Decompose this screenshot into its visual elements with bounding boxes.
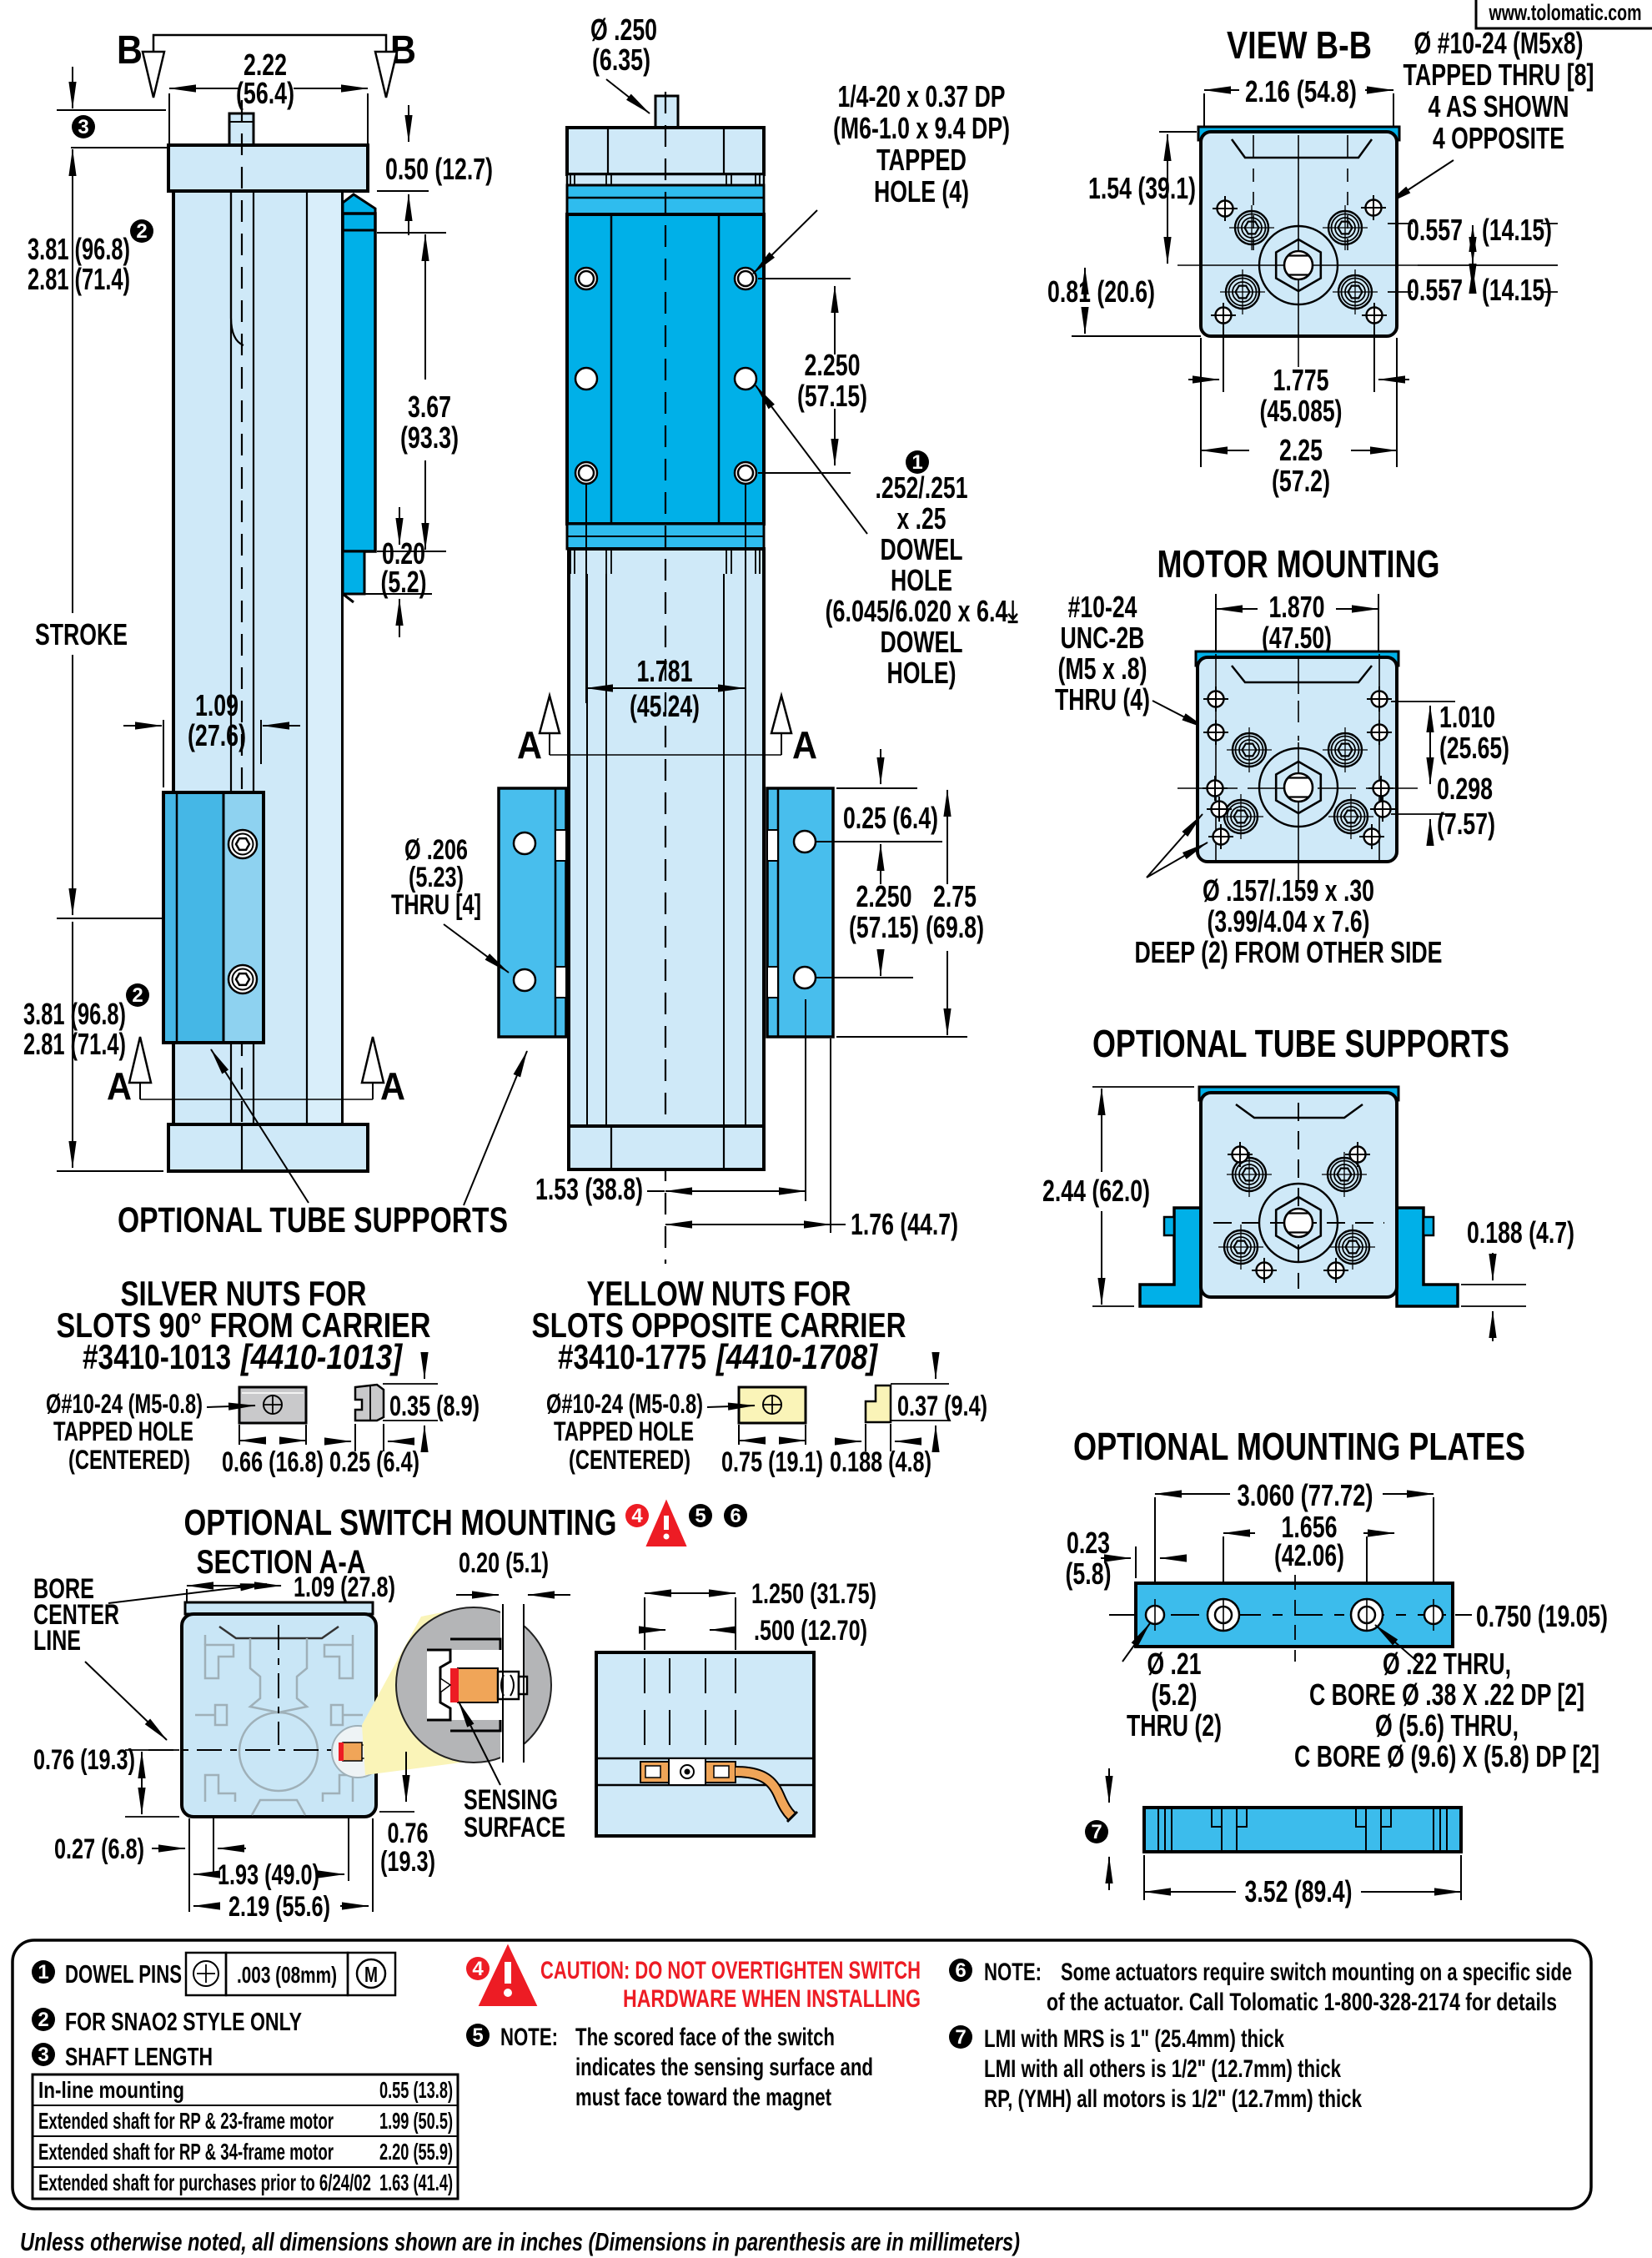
svg-text:Ø#10-24 (M5-0.8): Ø#10-24 (M5-0.8): [546, 1389, 703, 1419]
svg-text:1/4-20 x 0.37 DP: 1/4-20 x 0.37 DP: [838, 79, 1006, 113]
svg-text:THRU (4): THRU (4): [1055, 682, 1150, 717]
svg-text:0.50 (12.7): 0.50 (12.7): [385, 152, 493, 186]
svg-text:#10-24: #10-24: [1068, 590, 1137, 624]
svg-text:6: 6: [955, 1959, 966, 1982]
svg-text:(45.24): (45.24): [630, 689, 700, 723]
svg-text:.252/.251: .252/.251: [876, 470, 968, 505]
svg-text:3.52 (89.4): 3.52 (89.4): [1245, 1874, 1353, 1908]
svg-text:2.16 (54.8): 2.16 (54.8): [1245, 74, 1357, 108]
svg-text:A: A: [380, 1064, 405, 1108]
svg-text:4: 4: [631, 1505, 643, 1527]
svg-text:Ø #10-24 (M5x8): Ø #10-24 (M5x8): [1414, 26, 1584, 60]
svg-text:0.66 (16.8): 0.66 (16.8): [222, 1446, 324, 1478]
svg-text:1.63 (41.4): 1.63 (41.4): [379, 2170, 453, 2195]
svg-text:0.20 (5.1): 0.20 (5.1): [459, 1547, 549, 1579]
svg-text:LMI with all others is 1/2" (1: LMI with all others is 1/2" (12.7mm) thi…: [984, 2055, 1341, 2083]
svg-text:1.93 (49.0): 1.93 (49.0): [218, 1859, 319, 1891]
svg-text:1.781: 1.781: [637, 654, 693, 688]
svg-text:0.188 (4.7): 0.188 (4.7): [1467, 1215, 1574, 1250]
svg-text:3.81 (96.8): 3.81 (96.8): [23, 997, 126, 1031]
svg-text:4 AS SHOWN: 4 AS SHOWN: [1429, 89, 1569, 123]
svg-text:1.775: 1.775: [1273, 363, 1329, 397]
svg-text:2.19 (55.6): 2.19 (55.6): [228, 1891, 330, 1923]
svg-text:CAUTION: DO NOT OVERTIGHTEN SW: CAUTION: DO NOT OVERTIGHTEN SWITCH: [540, 1957, 921, 1984]
svg-text:(5.2): (5.2): [1152, 1677, 1198, 1712]
svg-text:FOR SNAO2 STYLE ONLY: FOR SNAO2 STYLE ONLY: [65, 2007, 302, 2036]
svg-text:Extended shaft for RP & 34-fra: Extended shaft for RP & 34-frame motor: [38, 2139, 334, 2165]
svg-text:0.25 (6.4): 0.25 (6.4): [329, 1446, 419, 1478]
svg-text:7: 7: [1091, 1821, 1102, 1843]
svg-text:0.37 (9.4): 0.37 (9.4): [897, 1391, 987, 1422]
svg-text:1.250 (31.75): 1.250 (31.75): [751, 1578, 876, 1610]
svg-text:A: A: [107, 1064, 132, 1108]
svg-text:(6.045/6.020 x 6.4⤓: (6.045/6.020 x 6.4⤓: [826, 594, 1019, 628]
svg-text:A: A: [792, 723, 817, 767]
svg-text:HARDWARE WHEN INSTALLING: HARDWARE WHEN INSTALLING: [623, 1985, 921, 2013]
svg-text:(56.4): (56.4): [236, 76, 294, 110]
svg-text:2: 2: [38, 2009, 48, 2031]
svg-text:(CENTERED): (CENTERED): [68, 1445, 190, 1475]
svg-text:A: A: [517, 723, 542, 767]
svg-text:2: 2: [136, 220, 147, 243]
svg-text:(M5 x .8): (M5 x .8): [1058, 651, 1147, 686]
svg-text:2.44 (62.0): 2.44 (62.0): [1042, 1174, 1150, 1208]
svg-text:(5.8): (5.8): [1066, 1556, 1112, 1591]
svg-text:must face toward the magnet: must face toward the magnet: [575, 2084, 831, 2111]
svg-text:TAPPED: TAPPED: [876, 143, 967, 177]
svg-text:Unless otherwise noted, all di: Unless otherwise noted, all dimensions s…: [20, 2227, 1020, 2256]
svg-text:1.010: 1.010: [1439, 700, 1495, 734]
svg-text:0.55 (13.8): 0.55 (13.8): [379, 2077, 453, 2103]
svg-text:HOLE (4): HOLE (4): [874, 174, 969, 209]
svg-text:(CENTERED): (CENTERED): [569, 1445, 690, 1475]
svg-text:3: 3: [38, 2044, 48, 2066]
svg-text:Ø .250: Ø .250: [590, 13, 657, 47]
svg-text:M: M: [364, 1962, 378, 1987]
svg-text:1.76 (44.7): 1.76 (44.7): [851, 1207, 958, 1241]
svg-text:2.25: 2.25: [1279, 433, 1323, 467]
svg-text:HOLE: HOLE: [891, 563, 952, 597]
svg-text:(5.2): (5.2): [381, 565, 427, 599]
svg-text:4 OPPOSITE: 4 OPPOSITE: [1433, 121, 1564, 155]
svg-text:www.tolomatic.com: www.tolomatic.com: [1489, 0, 1642, 25]
svg-text:(14.15): (14.15): [1482, 213, 1552, 247]
svg-text:(45.085): (45.085): [1260, 394, 1343, 428]
svg-text:0.81 (20.6): 0.81 (20.6): [1047, 274, 1155, 309]
svg-text:Ø .22 THRU,: Ø .22 THRU,: [1383, 1647, 1511, 1681]
svg-text:0.298: 0.298: [1437, 772, 1493, 806]
svg-text:0.23: 0.23: [1067, 1526, 1110, 1560]
svg-text:(57.2): (57.2): [1272, 464, 1330, 498]
svg-text:2.81 (71.4): 2.81 (71.4): [28, 262, 130, 296]
svg-text:(42.06): (42.06): [1274, 1538, 1344, 1572]
svg-text:0.557: 0.557: [1407, 213, 1463, 247]
svg-text:RP, (YMH) all motors is 1/2" (: RP, (YMH) all motors is 1/2" (12.7mm) th…: [984, 2085, 1362, 2113]
svg-text:0.76 (19.3): 0.76 (19.3): [33, 1744, 135, 1776]
svg-text:TAPPED THRU [8]: TAPPED THRU [8]: [1403, 58, 1594, 92]
svg-text:(69.8): (69.8): [926, 910, 984, 944]
svg-text:DOWEL PINS: DOWEL PINS: [65, 1959, 182, 1989]
svg-text:Ø#10-24 (M5-0.8): Ø#10-24 (M5-0.8): [46, 1389, 203, 1419]
svg-text:2.20 (55.9): 2.20 (55.9): [379, 2139, 453, 2165]
svg-text:3: 3: [78, 116, 88, 138]
svg-text:(6.35): (6.35): [592, 43, 650, 77]
svg-text:Extended shaft for RP & 23-fra: Extended shaft for RP & 23-frame motor: [38, 2108, 334, 2134]
svg-text:SHAFT LENGTH: SHAFT LENGTH: [65, 2042, 213, 2071]
svg-text:THRU [4]: THRU [4]: [391, 889, 481, 921]
svg-text:TAPPED HOLE: TAPPED HOLE: [53, 1416, 193, 1446]
svg-text:.003 (08mm): .003 (08mm): [237, 1962, 337, 1988]
svg-text:OPTIONAL SWITCH MOUNTING: OPTIONAL SWITCH MOUNTING: [184, 1502, 617, 1543]
svg-text:3.060 (77.72): 3.060 (77.72): [1238, 1478, 1373, 1512]
svg-text:(93.3): (93.3): [400, 420, 459, 455]
svg-text:OPTIONAL TUBE SUPPORTS: OPTIONAL TUBE SUPPORTS: [118, 1200, 508, 1240]
svg-text:B: B: [117, 28, 143, 73]
svg-text:(19.3): (19.3): [380, 1846, 435, 1878]
svg-text:#3410-1013: #3410-1013: [83, 1337, 231, 1376]
svg-text:1.09 (27.8): 1.09 (27.8): [294, 1572, 395, 1603]
svg-text:(47.50): (47.50): [1262, 621, 1332, 655]
svg-text:(3.99/4.04 x 7.6): (3.99/4.04 x 7.6): [1208, 904, 1370, 938]
svg-text:TAPPED HOLE: TAPPED HOLE: [554, 1416, 694, 1446]
svg-text:2.81 (71.4): 2.81 (71.4): [23, 1027, 126, 1061]
svg-text:DEEP (2) FROM OTHER SIDE: DEEP (2) FROM OTHER SIDE: [1135, 935, 1443, 969]
svg-text:UNC-2B: UNC-2B: [1061, 621, 1145, 655]
svg-text:2: 2: [132, 984, 143, 1007]
svg-text:In-line mounting: In-line mounting: [38, 2077, 184, 2103]
svg-text:Ø .21: Ø .21: [1147, 1647, 1202, 1681]
svg-text:1: 1: [38, 1961, 48, 1984]
svg-text:5: 5: [472, 2024, 483, 2047]
svg-text:0.188 (4.8): 0.188 (4.8): [830, 1446, 931, 1478]
svg-text:NOTE:: NOTE:: [500, 2024, 558, 2051]
svg-text:Ø (5.6) THRU,: Ø (5.6) THRU,: [1375, 1708, 1519, 1743]
svg-text:5: 5: [695, 1505, 705, 1527]
svg-text:1.09: 1.09: [195, 688, 239, 722]
svg-text:THRU (2): THRU (2): [1127, 1708, 1222, 1743]
svg-text:1.53 (38.8): 1.53 (38.8): [535, 1172, 643, 1206]
svg-text:The scored face of the switch: The scored face of the switch: [575, 2024, 835, 2051]
svg-text:0.750 (19.05): 0.750 (19.05): [1476, 1599, 1608, 1633]
svg-text:Ø .157/.159 x .30: Ø .157/.159 x .30: [1203, 873, 1374, 908]
svg-text:3.81 (96.8): 3.81 (96.8): [28, 232, 130, 266]
svg-text:(7.57): (7.57): [1437, 807, 1495, 841]
svg-text:LINE: LINE: [33, 1625, 81, 1657]
svg-text:SURFACE: SURFACE: [464, 1812, 565, 1843]
svg-text:1.54 (39.1): 1.54 (39.1): [1088, 171, 1196, 205]
svg-text:C BORE Ø (9.6) X (5.8) DP [2]: C BORE Ø (9.6) X (5.8) DP [2]: [1294, 1739, 1599, 1773]
svg-text:0.25 (6.4): 0.25 (6.4): [843, 801, 938, 835]
svg-text:x .25: x .25: [897, 501, 947, 536]
svg-text:0.557: 0.557: [1407, 273, 1463, 307]
svg-text:DOWEL: DOWEL: [881, 532, 963, 566]
svg-text:(M6-1.0 x 9.4 DP): (M6-1.0 x 9.4 DP): [833, 111, 1010, 145]
svg-text:STROKE: STROKE: [35, 617, 128, 651]
svg-text:(27.6): (27.6): [188, 718, 246, 752]
svg-text:(57.15): (57.15): [849, 910, 919, 944]
svg-text:0.76: 0.76: [388, 1818, 429, 1849]
svg-text:VIEW B-B: VIEW B-B: [1227, 23, 1372, 67]
svg-text:(14.15): (14.15): [1482, 273, 1552, 307]
svg-text:HOLE): HOLE): [887, 656, 957, 690]
svg-text:of the actuator. Call Tolomati: of the actuator. Call Tolomatic 1-800-32…: [1047, 1989, 1557, 2016]
svg-text:[4410-1708]: [4410-1708]: [715, 1337, 878, 1376]
svg-text:[4410-1013]: [4410-1013]: [239, 1337, 403, 1376]
svg-text:LMI with MRS is 1" (25.4mm) th: LMI with MRS is 1" (25.4mm) thick: [984, 2025, 1284, 2053]
svg-text:3.67: 3.67: [408, 390, 451, 424]
svg-text:7: 7: [955, 2026, 966, 2049]
svg-text:OPTIONAL MOUNTING PLATES: OPTIONAL MOUNTING PLATES: [1073, 1425, 1525, 1468]
svg-text:(57.15): (57.15): [797, 379, 867, 413]
svg-text:2.75: 2.75: [933, 879, 977, 913]
svg-text:Extended shaft for purchases p: Extended shaft for purchases prior to 6/…: [38, 2170, 371, 2195]
svg-text:2.250: 2.250: [805, 348, 861, 382]
svg-text:DOWEL: DOWEL: [881, 625, 963, 659]
svg-text:.500 (12.70): .500 (12.70): [754, 1615, 867, 1647]
svg-text:NOTE:: NOTE:: [984, 1959, 1042, 1986]
svg-text:#3410-1775: #3410-1775: [558, 1337, 706, 1376]
svg-text:(25.65): (25.65): [1439, 731, 1509, 765]
svg-text:MOTOR MOUNTING: MOTOR MOUNTING: [1157, 542, 1440, 586]
svg-text:Some actuators require switch: Some actuators require switch mounting o…: [1061, 1959, 1572, 1986]
svg-text:C BORE Ø .38 X .22 DP [2]: C BORE Ø .38 X .22 DP [2]: [1309, 1677, 1584, 1712]
svg-text:OPTIONAL TUBE SUPPORTS: OPTIONAL TUBE SUPPORTS: [1092, 1022, 1509, 1065]
svg-text:0.27 (6.8): 0.27 (6.8): [54, 1833, 144, 1865]
svg-text:0.35 (8.9): 0.35 (8.9): [389, 1391, 480, 1422]
svg-text:0.75 (19.1): 0.75 (19.1): [721, 1446, 823, 1478]
svg-text:2.250: 2.250: [856, 879, 912, 913]
svg-text:4: 4: [472, 1958, 484, 1980]
svg-text:6: 6: [730, 1505, 741, 1527]
svg-text:indicates the sensing surface: indicates the sensing surface and: [575, 2054, 873, 2081]
svg-text:1.99 (50.5): 1.99 (50.5): [379, 2108, 453, 2134]
svg-text:1.870: 1.870: [1269, 590, 1325, 624]
